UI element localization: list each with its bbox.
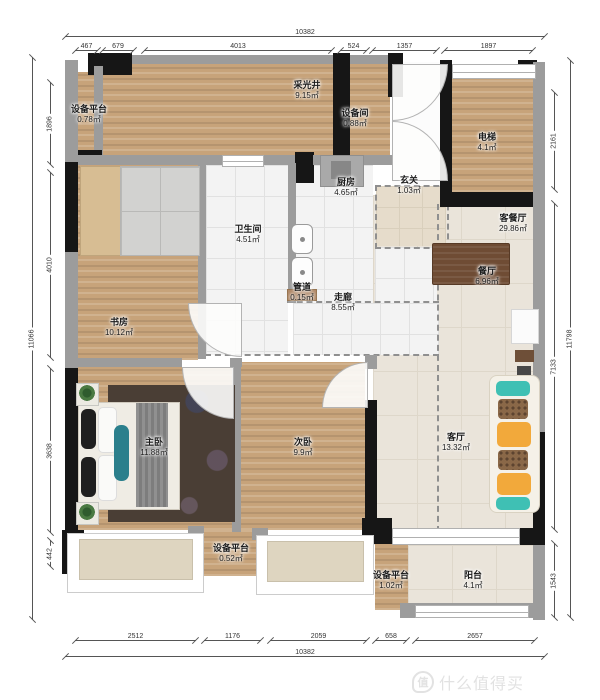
dim-value: 2161: [551, 131, 558, 151]
dim-tick: [192, 637, 199, 644]
room-label-master-bedroom: 主卧 11.88㎡: [122, 437, 186, 457]
side-cabinet: [511, 309, 539, 344]
dim-value: 658: [385, 633, 397, 640]
sofa-pillow-pattern-2: [498, 450, 528, 470]
study-wardrobe: [80, 166, 122, 256]
balcony-window: [415, 605, 529, 618]
wall-left-middle: [65, 252, 78, 368]
dim-bottom-seg-4: 658: [375, 630, 407, 644]
dim-value: 10382: [295, 649, 314, 656]
bed-pillow-dark-2: [81, 457, 96, 497]
sofa-pillow-teal-bottom: [496, 497, 530, 510]
dim-value: 2059: [311, 633, 327, 640]
dim-left-total: 11066: [26, 57, 38, 620]
room-name: 设备平台: [197, 543, 265, 554]
room-area: 0.78㎡: [58, 115, 120, 125]
room-area: 0.52㎡: [197, 554, 265, 564]
room-area: 4.1㎡: [444, 581, 502, 591]
dim-value: 1897: [481, 43, 497, 50]
dim-top-seg-6: 1897: [444, 40, 533, 54]
floor-plan: 设备平台 0.78㎡ 采光井 9.15㎡ 设备间 0.88㎡ 电梯 4.1㎡ 厨…: [0, 0, 600, 700]
dim-tick: [363, 637, 370, 644]
room-area: 1.03㎡: [380, 186, 438, 196]
bay-window-master-seat: [79, 539, 193, 580]
room-label-elevator: 电梯 4.1㎡: [457, 132, 517, 152]
dim-tick: [541, 653, 548, 660]
dim-bottom-seg-2: 1176: [204, 630, 261, 644]
sofa-pillow-yellow-1: [497, 422, 531, 447]
room-area: 10.12㎡: [88, 328, 150, 338]
room-label-living-dining: 客餐厅 29.86㎡: [482, 213, 544, 233]
watermark: 值 什么值得买: [412, 670, 524, 694]
wall-left-black-upper: [65, 162, 78, 252]
dim-line: [340, 50, 367, 51]
room-area: 29.86㎡: [482, 224, 544, 234]
dim-value: 7133: [551, 357, 558, 377]
dim-line: [65, 656, 545, 657]
room-label-living-room: 客厅 13.32㎡: [427, 432, 485, 452]
room-area: 4.65㎡: [317, 188, 375, 198]
dim-top-total: 10382: [65, 26, 545, 40]
room-name: 主卧: [122, 437, 186, 448]
dim-line: [102, 50, 134, 51]
dim-value: 4010: [47, 255, 54, 275]
dim-left-seg-4: 442: [44, 540, 56, 567]
console-item: [515, 350, 534, 362]
dim-bottom-seg-3: 2059: [270, 630, 367, 644]
living-room-south-window: [392, 528, 520, 545]
dim-value: 442: [47, 546, 54, 562]
room-name: 次卧: [272, 437, 334, 448]
watermark-brand-text: 什么值得买: [439, 670, 524, 694]
bay-window-second-seat: [267, 541, 364, 582]
dim-tick: [403, 637, 410, 644]
room-name: 玄关: [380, 175, 438, 186]
room-label-equip-platform-bottom: 设备平台 0.52㎡: [197, 543, 265, 563]
dim-line: [65, 36, 545, 37]
room-area: 9.15㎡: [275, 91, 339, 101]
room-name: 餐厅: [458, 266, 516, 277]
bed-pillow-dark-1: [81, 409, 96, 449]
dim-line: [144, 50, 332, 51]
dim-bottom-total: 10382: [65, 646, 545, 660]
dim-right-seg-2: 7133: [548, 203, 560, 530]
smzdm-logo-icon: 值: [412, 671, 434, 693]
room-label-balcony: 阳台 4.1㎡: [444, 570, 502, 590]
dim-line: [444, 50, 533, 51]
dim-line: [415, 640, 535, 641]
wall-elevator-bottom: [440, 192, 537, 207]
room-area: 0.88㎡: [324, 119, 386, 129]
dim-right-seg-3: 1543: [548, 543, 560, 618]
wall-second-living: [365, 400, 377, 532]
room-area: 6.96㎡: [458, 277, 516, 287]
dim-bottom-seg-1: 2512: [75, 630, 196, 644]
wall-corner-living-south-right: [518, 528, 545, 545]
dim-line: [75, 640, 196, 641]
room-area: 9.9㎡: [272, 448, 334, 458]
dim-left-seg-1: 1896: [44, 82, 56, 165]
dim-value: 524: [348, 43, 360, 50]
room-label-second-bedroom: 次卧 9.9㎡: [272, 437, 334, 457]
plant-top: [79, 385, 95, 401]
dim-right-total: 11798: [564, 60, 576, 618]
wall-study-master: [78, 358, 182, 367]
room-label-entry: 玄关 1.03㎡: [380, 175, 438, 195]
floor-corridor-upper: [375, 247, 437, 305]
dim-tick: [531, 637, 538, 644]
dim-value: 3638: [47, 441, 54, 461]
room-name: 客餐厅: [482, 213, 544, 224]
dim-value: 2512: [128, 633, 144, 640]
console-item-small: [517, 366, 531, 375]
room-name: 客厅: [427, 432, 485, 443]
dim-left-seg-2: 4010: [44, 172, 56, 358]
washbasin-top: [291, 224, 313, 254]
dim-value: 1176: [225, 633, 240, 640]
room-area: 13.32㎡: [427, 443, 485, 453]
room-name: 设备平台: [359, 570, 423, 581]
room-name: 厨房: [317, 177, 375, 188]
dim-value: 11066: [29, 327, 36, 350]
room-name: 采光井: [275, 80, 339, 91]
dim-top-seg-2: 679: [102, 40, 134, 54]
floor-light-well: [103, 62, 333, 162]
dim-line: [270, 640, 367, 641]
room-name: 阳台: [444, 570, 502, 581]
dim-line: [372, 50, 437, 51]
dim-top-seg-3: 4013: [144, 40, 332, 54]
room-area: 11.88㎡: [122, 448, 186, 458]
room-name: 书房: [88, 317, 150, 328]
dim-tick: [529, 47, 536, 54]
room-area: 4.1㎡: [457, 143, 517, 153]
room-name: 走廊: [315, 292, 371, 303]
dim-value: 1896: [47, 114, 54, 134]
dim-value: 4013: [230, 43, 246, 50]
elevator-window: [452, 64, 536, 79]
dim-bottom-seg-5: 2657: [415, 630, 535, 644]
room-area: 1.02㎡: [359, 581, 423, 591]
dim-top-seg-4: 524: [340, 40, 367, 54]
room-label-dining: 餐厅 6.96㎡: [458, 266, 516, 286]
room-label-equip-platform-tl: 设备平台 0.78㎡: [58, 104, 120, 124]
dim-tick: [257, 637, 264, 644]
room-label-equip-room: 设备间 0.88㎡: [324, 108, 386, 128]
dim-value: 1357: [397, 43, 413, 50]
dim-top-seg-1: 467: [75, 40, 98, 54]
bathroom-window: [222, 155, 264, 167]
dim-left-seg-3: 3638: [44, 368, 56, 533]
dim-value: 10382: [295, 29, 314, 36]
room-area: 4.51㎡: [217, 235, 279, 245]
room-label-kitchen: 厨房 4.65㎡: [317, 177, 375, 197]
dim-tick: [130, 47, 137, 54]
dim-right-seg-1: 2161: [548, 92, 560, 190]
sofa-pillow-yellow-2: [497, 473, 531, 495]
dim-value: 679: [112, 43, 124, 50]
room-name: 电梯: [457, 132, 517, 143]
room-label-study: 书房 10.12㎡: [88, 317, 150, 337]
room-name: 卫生间: [217, 224, 279, 235]
dim-value: 1543: [551, 571, 558, 591]
wall-right-upper: [533, 62, 545, 195]
room-label-equip-platform-right: 设备平台 1.02㎡: [359, 570, 423, 590]
room-label-light-well: 采光井 9.15㎡: [275, 80, 339, 100]
plant-bottom: [79, 504, 95, 520]
dim-line: [375, 640, 407, 641]
dim-value: 2657: [467, 633, 483, 640]
dim-line: [204, 640, 261, 641]
room-label-bathroom: 卫生间 4.51㎡: [217, 224, 279, 244]
room-label-corridor: 走廊 8.55㎡: [315, 292, 371, 312]
room-name: 设备间: [324, 108, 386, 119]
wall-kitchen-column: [295, 152, 314, 183]
dim-tick: [433, 47, 440, 54]
room-area: 8.55㎡: [315, 303, 371, 313]
dim-value: 467: [81, 43, 93, 50]
dim-top-seg-5: 1357: [372, 40, 437, 54]
dim-tick: [541, 33, 548, 40]
room-name: 设备平台: [58, 104, 120, 115]
sofa-pillow-teal-top: [496, 381, 530, 396]
study-drawer-cabinet: [120, 166, 200, 256]
sofa-pillow-pattern-1: [498, 399, 528, 419]
dim-value: 11798: [567, 328, 574, 351]
